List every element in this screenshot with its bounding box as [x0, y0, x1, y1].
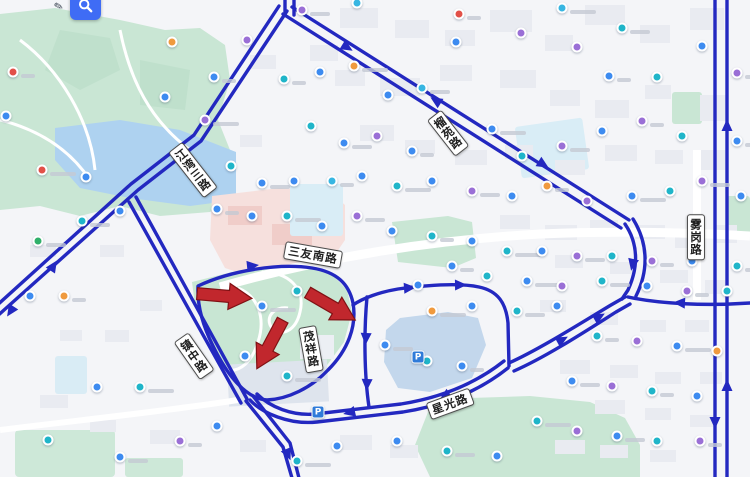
- poi-label-placeholder: [710, 183, 730, 187]
- poi-marker[interactable]: [175, 436, 186, 447]
- poi-label-placeholder: [292, 81, 306, 85]
- poi-label-placeholder: [650, 123, 664, 127]
- poi-marker[interactable]: [537, 246, 548, 257]
- poi-label-placeholder: [393, 347, 413, 351]
- poi-marker[interactable]: [306, 121, 317, 132]
- poi-marker[interactable]: [542, 181, 553, 192]
- route-arrowhead-icon: [360, 333, 372, 346]
- poi-marker[interactable]: [492, 451, 503, 462]
- poi-marker[interactable]: [522, 276, 533, 287]
- poi-marker[interactable]: [697, 41, 708, 52]
- poi-marker[interactable]: [427, 176, 438, 187]
- poi-marker[interactable]: [642, 281, 653, 292]
- poi-marker[interactable]: [607, 381, 618, 392]
- poi-marker[interactable]: [597, 276, 608, 287]
- poi-marker[interactable]: [247, 211, 258, 222]
- poi-marker[interactable]: [516, 28, 527, 39]
- poi-marker[interactable]: [349, 61, 360, 72]
- poi-marker[interactable]: [212, 421, 223, 432]
- poi-label-placeholder: [617, 78, 631, 82]
- poi-marker[interactable]: [677, 131, 688, 142]
- poi-label-placeholder: [305, 463, 331, 467]
- poi-marker[interactable]: [607, 251, 618, 262]
- poi-label-placeholder: [685, 348, 711, 352]
- poi-label-placeholder: [570, 148, 590, 152]
- poi-marker[interactable]: [209, 72, 220, 83]
- poi-marker[interactable]: [417, 83, 428, 94]
- poi-label-placeholder: [585, 258, 605, 262]
- poi-label-placeholder: [470, 368, 484, 372]
- search-icon: [78, 0, 93, 13]
- route-arrowhead-icon: [673, 297, 686, 309]
- route-arrowhead-icon: [361, 379, 372, 391]
- poi-marker[interactable]: [617, 23, 628, 34]
- poi-marker[interactable]: [387, 226, 398, 237]
- route-arrowhead-icon: [722, 379, 733, 391]
- poi-marker[interactable]: [427, 306, 438, 317]
- route-line: [365, 297, 369, 407]
- route-arrowhead-icon: [455, 279, 467, 290]
- poi-label-placeholder: [545, 423, 571, 427]
- poi-label-placeholder: [340, 183, 354, 187]
- poi-marker[interactable]: [597, 126, 608, 137]
- poi-marker[interactable]: [457, 361, 468, 372]
- poi-label-placeholder: [708, 443, 722, 447]
- poi-marker[interactable]: [467, 186, 478, 197]
- poi-label-placeholder: [46, 243, 66, 247]
- poi-label-placeholder: [420, 153, 434, 157]
- poi-marker[interactable]: [487, 124, 498, 135]
- poi-marker[interactable]: [427, 231, 438, 242]
- poi-marker[interactable]: [647, 386, 658, 397]
- route-line: [0, 6, 279, 308]
- poi-marker[interactable]: [77, 216, 88, 227]
- poi-marker[interactable]: [392, 181, 403, 192]
- poi-marker[interactable]: [25, 291, 36, 302]
- poi-marker[interactable]: [627, 191, 638, 202]
- route-line: [628, 297, 750, 304]
- poi-marker[interactable]: [502, 246, 513, 257]
- poi-marker[interactable]: [557, 3, 568, 14]
- poi-marker[interactable]: [467, 236, 478, 247]
- poi-label-placeholder: [500, 131, 526, 135]
- poi-marker[interactable]: [736, 191, 747, 202]
- poi-label-placeholder: [660, 263, 674, 267]
- poi-label-placeholder: [660, 393, 674, 397]
- poi-label-placeholder: [745, 268, 750, 272]
- poi-marker[interactable]: [652, 436, 663, 447]
- poi-marker[interactable]: [200, 115, 211, 126]
- poi-marker[interactable]: [357, 171, 368, 182]
- poi-label-placeholder: [480, 193, 500, 197]
- poi-label-placeholder: [90, 223, 110, 227]
- poi-marker[interactable]: [732, 68, 743, 79]
- poi-marker[interactable]: [59, 291, 70, 302]
- poi-marker[interactable]: [332, 441, 343, 452]
- poi-marker[interactable]: [167, 37, 178, 48]
- poi-label-placeholder: [270, 308, 296, 312]
- poi-marker[interactable]: [339, 138, 350, 149]
- poi-marker[interactable]: [612, 431, 623, 442]
- poi-marker[interactable]: [282, 211, 293, 222]
- poi-label-placeholder: [525, 313, 545, 317]
- poi-marker[interactable]: [454, 9, 465, 20]
- poi-marker[interactable]: [43, 435, 54, 446]
- poi-marker[interactable]: [282, 371, 293, 382]
- poi-marker[interactable]: [712, 346, 723, 357]
- poi-marker[interactable]: [482, 271, 493, 282]
- poi-marker[interactable]: [289, 176, 300, 187]
- poi-marker[interactable]: [451, 37, 462, 48]
- poi-marker[interactable]: [297, 5, 308, 16]
- poi-marker[interactable]: [226, 161, 237, 172]
- poi-marker[interactable]: [557, 281, 568, 292]
- route-line: [509, 297, 625, 363]
- poi-marker[interactable]: [372, 131, 383, 142]
- poi-label-placeholder: [640, 198, 666, 202]
- map-canvas[interactable]: PP 江湾三路榴苑路三友南路镇中路茂祥路雾岗路星光路 ✎: [0, 0, 750, 477]
- poi-marker[interactable]: [8, 67, 19, 78]
- poi-label-placeholder: [362, 68, 388, 72]
- poi-marker[interactable]: [567, 376, 578, 387]
- poi-marker[interactable]: [652, 72, 663, 83]
- poi-label-placeholder: [605, 338, 619, 342]
- poi-label-placeholder: [72, 298, 86, 302]
- poi-label-placeholder: [440, 238, 454, 242]
- poi-marker[interactable]: [240, 351, 251, 362]
- poi-label-placeholder: [270, 185, 290, 189]
- poi-marker[interactable]: [315, 67, 326, 78]
- poi-marker[interactable]: [507, 191, 518, 202]
- poi-marker[interactable]: [467, 301, 478, 312]
- poi-marker[interactable]: [665, 186, 676, 197]
- poi-marker[interactable]: [557, 141, 568, 152]
- poi-marker[interactable]: [572, 426, 583, 437]
- poi-label-placeholder: [128, 459, 148, 463]
- poi-label-placeholder: [625, 438, 645, 442]
- route-arrowhead-icon: [710, 417, 721, 429]
- parking-icon[interactable]: P: [312, 406, 325, 419]
- poi-label-placeholder: [365, 218, 385, 222]
- poi-label-placeholder: [610, 283, 630, 287]
- poi-marker[interactable]: [682, 286, 693, 297]
- poi-marker[interactable]: [327, 176, 338, 187]
- poi-label-placeholder: [295, 378, 321, 382]
- poi-marker[interactable]: [115, 452, 126, 463]
- poi-marker[interactable]: [732, 136, 743, 147]
- poi-marker[interactable]: [212, 204, 223, 215]
- poi-label-placeholder: [310, 12, 330, 16]
- poi-marker[interactable]: [572, 42, 583, 53]
- poi-marker[interactable]: [604, 71, 615, 82]
- poi-label-placeholder: [188, 443, 202, 447]
- poi-marker[interactable]: [632, 336, 643, 347]
- poi-label-placeholder: [352, 145, 372, 149]
- poi-marker[interactable]: [672, 341, 683, 352]
- poi-label-placeholder: [213, 122, 239, 126]
- poi-marker[interactable]: [317, 221, 328, 232]
- poi-marker[interactable]: [257, 301, 268, 312]
- poi-marker[interactable]: [413, 280, 424, 291]
- poi-marker[interactable]: [352, 211, 363, 222]
- poi-marker[interactable]: [582, 196, 593, 207]
- poi-marker[interactable]: [447, 261, 458, 272]
- poi-marker[interactable]: [279, 74, 290, 85]
- poi-label-placeholder: [460, 268, 474, 272]
- poi-marker[interactable]: [383, 90, 394, 101]
- poi-label-placeholder: [630, 30, 650, 34]
- poi-label-placeholder: [405, 188, 431, 192]
- route-line: [353, 285, 509, 366]
- poi-label-placeholder: [50, 172, 76, 176]
- poi-marker[interactable]: [692, 391, 703, 402]
- poi-label-placeholder: [21, 74, 35, 78]
- poi-marker[interactable]: [517, 151, 528, 162]
- poi-label-placeholder: [430, 90, 450, 94]
- poi-marker[interactable]: [380, 340, 391, 351]
- annotation-arrow-icon: [245, 314, 294, 375]
- route-arrowhead-icon: [722, 119, 733, 131]
- poi-marker[interactable]: [33, 236, 44, 247]
- poi-marker[interactable]: [81, 172, 92, 183]
- poi-marker[interactable]: [732, 261, 743, 272]
- poi-label-placeholder: [222, 79, 236, 83]
- poi-label-placeholder: [455, 453, 475, 457]
- poi-marker[interactable]: [392, 436, 403, 447]
- poi-marker[interactable]: [722, 286, 733, 297]
- poi-label-placeholder: [225, 211, 239, 215]
- poi-marker[interactable]: [407, 146, 418, 157]
- poi-marker[interactable]: [442, 446, 453, 457]
- poi-marker[interactable]: [572, 251, 583, 262]
- poi-marker[interactable]: [292, 456, 303, 467]
- poi-label-placeholder: [580, 383, 600, 387]
- poi-marker[interactable]: [1, 111, 12, 122]
- poi-marker[interactable]: [292, 286, 303, 297]
- poi-marker[interactable]: [532, 416, 543, 427]
- poi-marker[interactable]: [160, 92, 171, 103]
- poi-label-placeholder: [440, 313, 466, 317]
- poi-marker[interactable]: [697, 176, 708, 187]
- poi-label-placeholder: [745, 75, 750, 79]
- poi-marker[interactable]: [592, 331, 603, 342]
- poi-marker[interactable]: [92, 382, 103, 393]
- poi-marker[interactable]: [512, 306, 523, 317]
- poi-label-placeholder: [467, 16, 481, 20]
- poi-marker[interactable]: [257, 178, 268, 189]
- search-button[interactable]: [70, 0, 101, 20]
- poi-marker[interactable]: [135, 382, 146, 393]
- poi-marker[interactable]: [37, 165, 48, 176]
- annotation-arrow-icon: [196, 281, 253, 312]
- poi-label-placeholder: [555, 188, 569, 192]
- poi-marker[interactable]: [637, 116, 648, 127]
- poi-label-placeholder: [695, 293, 709, 297]
- parking-icon[interactable]: P: [412, 351, 425, 364]
- poi-marker[interactable]: [695, 436, 706, 447]
- poi-marker[interactable]: [647, 256, 658, 267]
- poi-label-placeholder: [745, 143, 750, 147]
- poi-label-placeholder: [570, 10, 596, 14]
- poi-marker[interactable]: [552, 301, 563, 312]
- poi-label-placeholder: [148, 389, 174, 393]
- poi-marker[interactable]: [115, 206, 126, 217]
- road-name-label: 雾岗路: [687, 214, 705, 260]
- poi-marker[interactable]: [242, 35, 253, 46]
